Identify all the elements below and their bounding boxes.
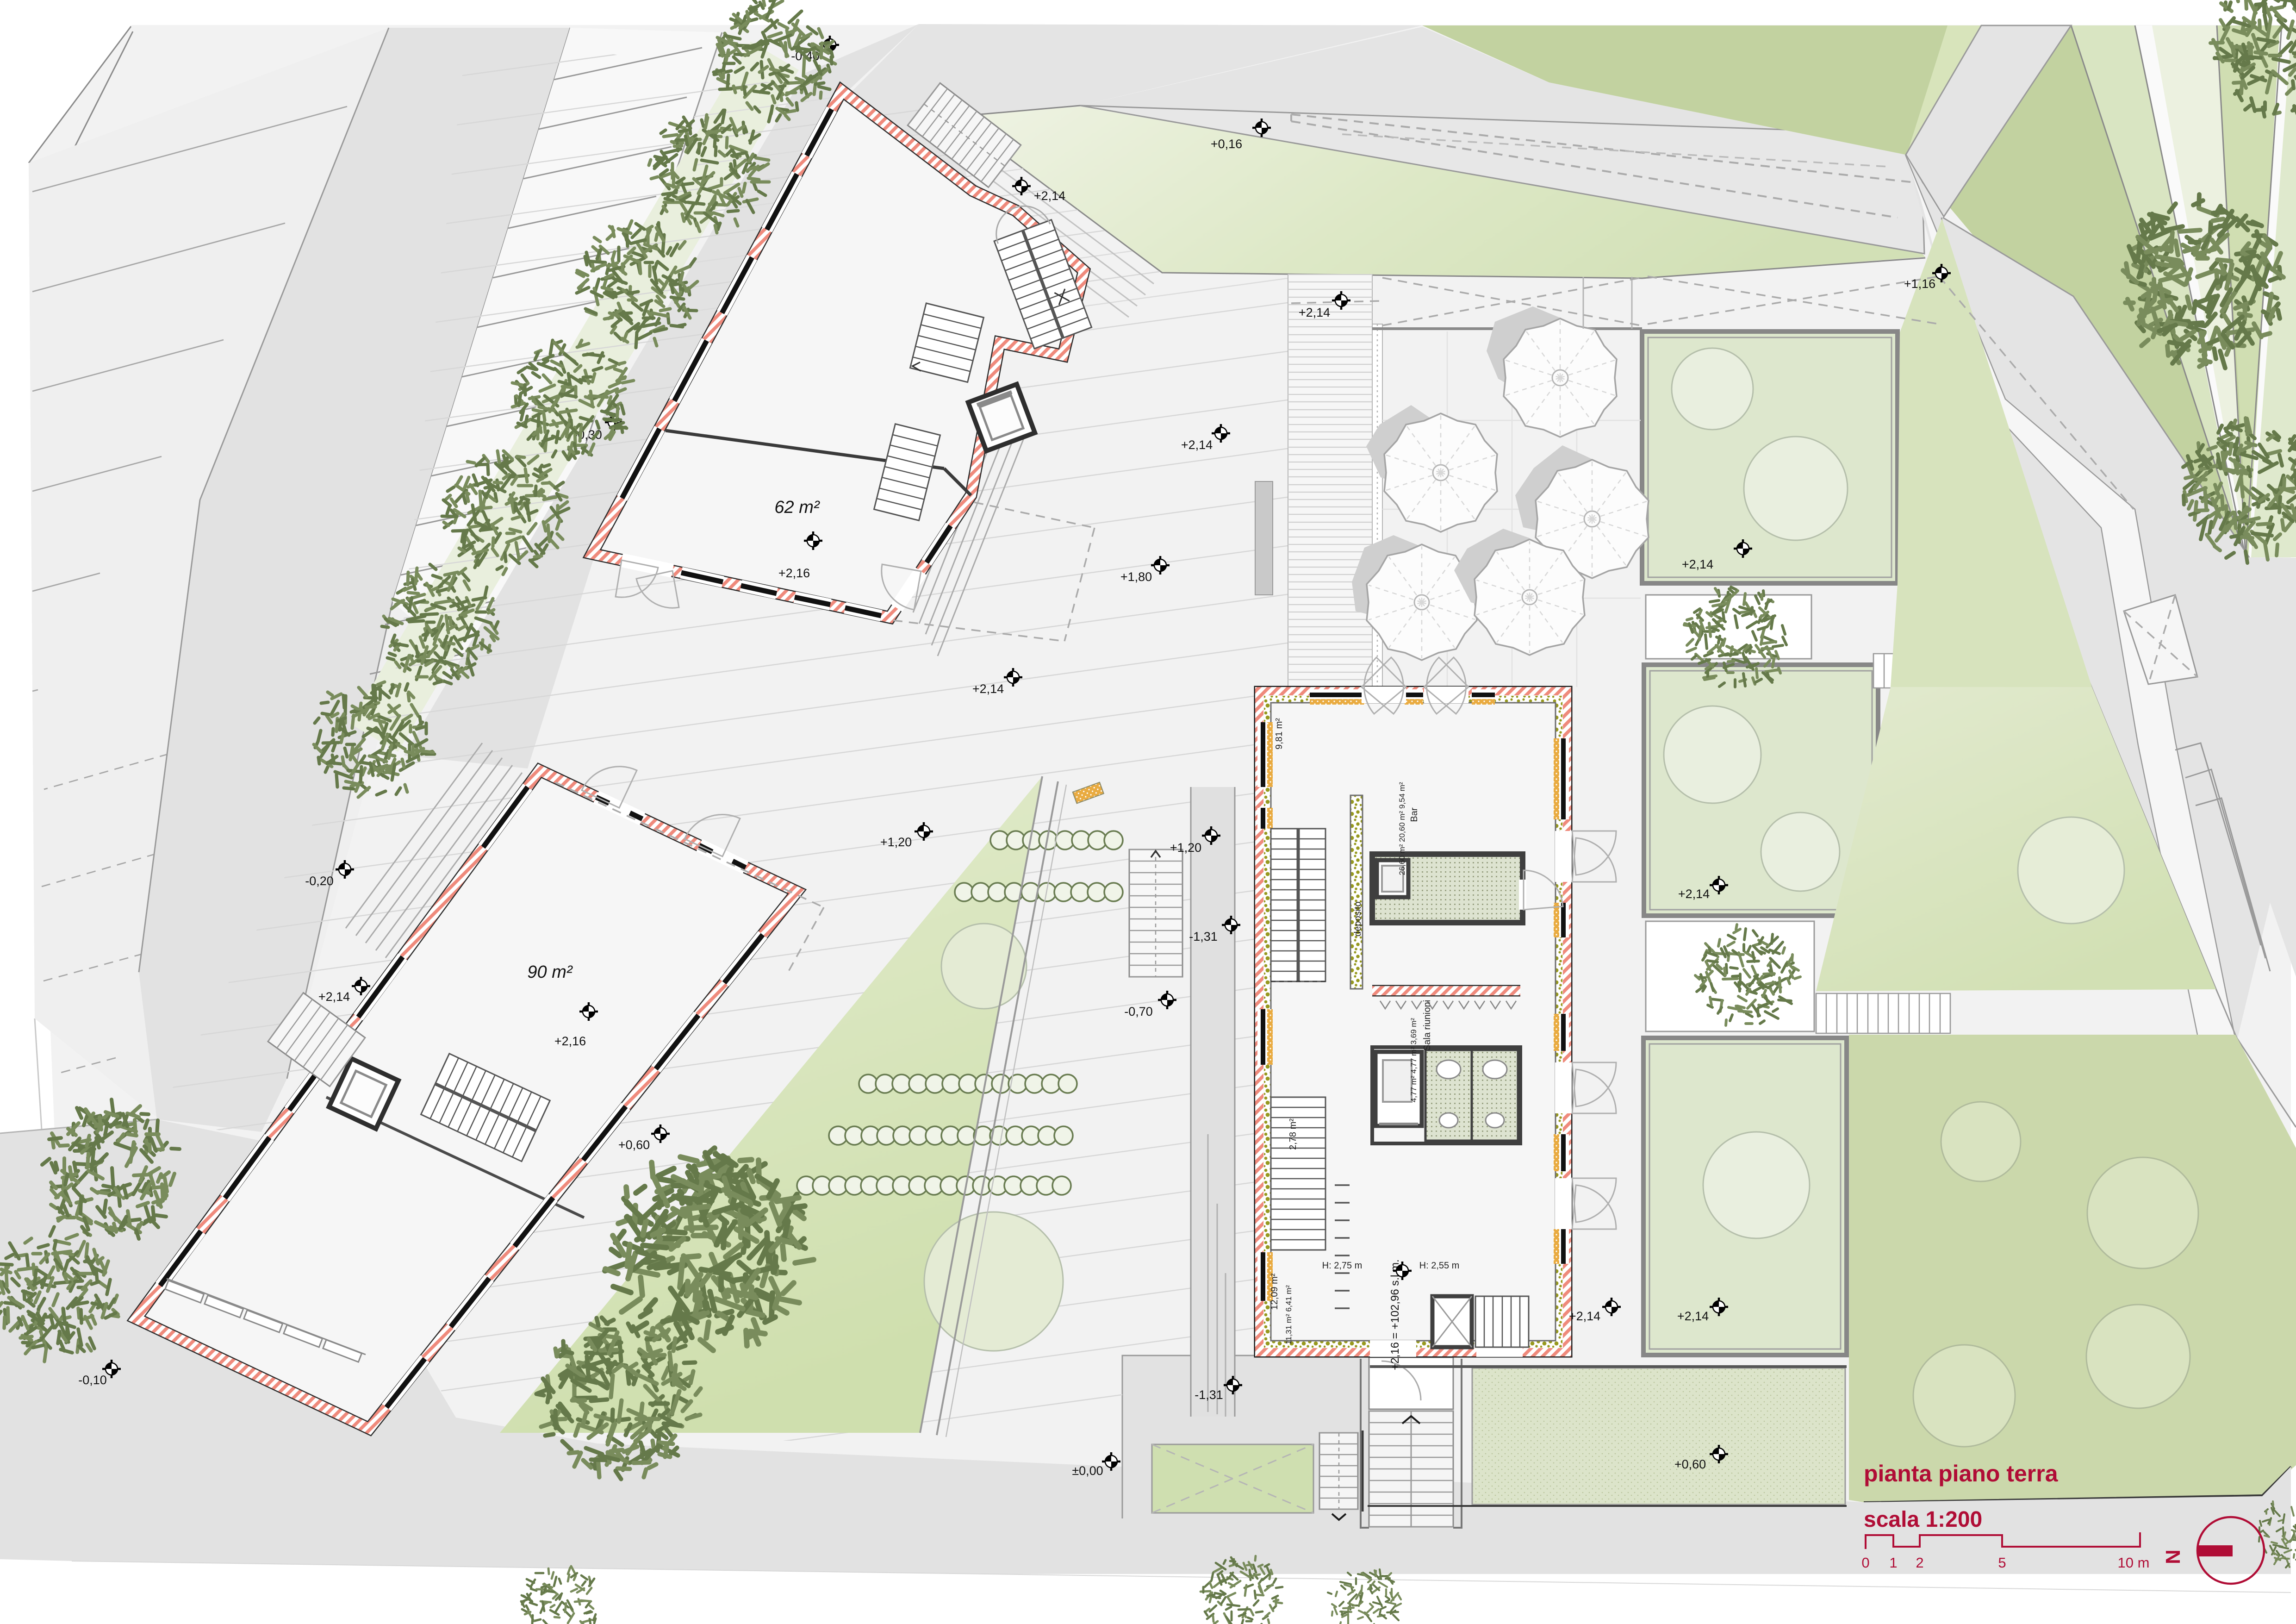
svg-text:+1,80: +1,80 — [1120, 570, 1152, 584]
svg-text:5: 5 — [1998, 1555, 2006, 1571]
svg-text:+2,14: +2,14 — [1678, 887, 1710, 901]
svg-text:0: 0 — [1861, 1555, 1869, 1571]
svg-text:+1,20: +1,20 — [1170, 841, 1201, 855]
svg-text:+2,14: +2,14 — [1677, 1309, 1709, 1323]
svg-text:+0,60: +0,60 — [1674, 1457, 1706, 1471]
svg-text:Sala riunioni: Sala riunioni — [1422, 1000, 1432, 1051]
svg-text:H: 2,55 m: H: 2,55 m — [1419, 1261, 1460, 1271]
svg-text:4,77 m² 4,77 m² 3,69 m²: 4,77 m² 4,77 m² 3,69 m² — [1409, 1018, 1418, 1102]
svg-text:90 m²: 90 m² — [527, 962, 572, 982]
svg-text:-0,70: -0,70 — [1124, 1005, 1153, 1018]
svg-text:11,31 m² 6,41 m²: 11,31 m² 6,41 m² — [1284, 1285, 1293, 1345]
svg-text:9,81 m²: 9,81 m² — [1274, 718, 1284, 750]
svg-text:±0,00: ±0,00 — [1072, 1464, 1103, 1478]
svg-text:+1,20: +1,20 — [880, 835, 912, 849]
svg-text:62 m²: 62 m² — [774, 498, 820, 517]
svg-text:+2,14: +2,14 — [1181, 438, 1213, 452]
svg-text:+2,14: +2,14 — [1034, 189, 1065, 203]
svg-text:12,09 m²: 12,09 m² — [1269, 1273, 1280, 1310]
svg-text:10 m: 10 m — [2118, 1555, 2150, 1571]
svg-text:+2,14: +2,14 — [972, 682, 1004, 696]
svg-text:pianta piano terra: pianta piano terra — [1864, 1461, 2059, 1487]
svg-text:+2,14: +2,14 — [1569, 1309, 1600, 1323]
svg-text:2: 2 — [1916, 1555, 1923, 1571]
svg-text:-0,20: -0,20 — [305, 874, 334, 888]
svg-text:+2,16: +2,16 — [554, 1034, 586, 1048]
svg-text:+2,14: +2,14 — [318, 990, 350, 1004]
svg-text:H: 2,75 m: H: 2,75 m — [1322, 1261, 1363, 1271]
svg-text:+0,16: +0,16 — [1211, 137, 1242, 151]
svg-text:+1,16: +1,16 — [1904, 277, 1935, 291]
svg-text:26,60 m² 20,60 m² 9,54 m²: 26,60 m² 20,60 m² 9,54 m² — [1398, 782, 1406, 875]
svg-text:-0,10: -0,10 — [78, 1373, 107, 1387]
svg-text:1: 1 — [1889, 1555, 1897, 1571]
svg-text:-1,31: -1,31 — [1189, 930, 1218, 943]
svg-text:+2,14: +2,14 — [1682, 557, 1713, 571]
svg-text:-1,31: -1,31 — [1195, 1388, 1223, 1402]
svg-text:+2,14: +2,14 — [1299, 306, 1330, 319]
svg-text:+0,60: +0,60 — [618, 1138, 650, 1152]
svg-text:N: N — [2162, 1549, 2184, 1564]
svg-text:scala 1:200: scala 1:200 — [1864, 1507, 1982, 1532]
svg-text:Bar: Bar — [1409, 807, 1419, 822]
svg-text:2,78 m²: 2,78 m² — [1288, 1118, 1298, 1150]
svg-text:+2,16: +2,16 — [778, 566, 810, 580]
svg-text:deposito: deposito — [1353, 901, 1363, 937]
